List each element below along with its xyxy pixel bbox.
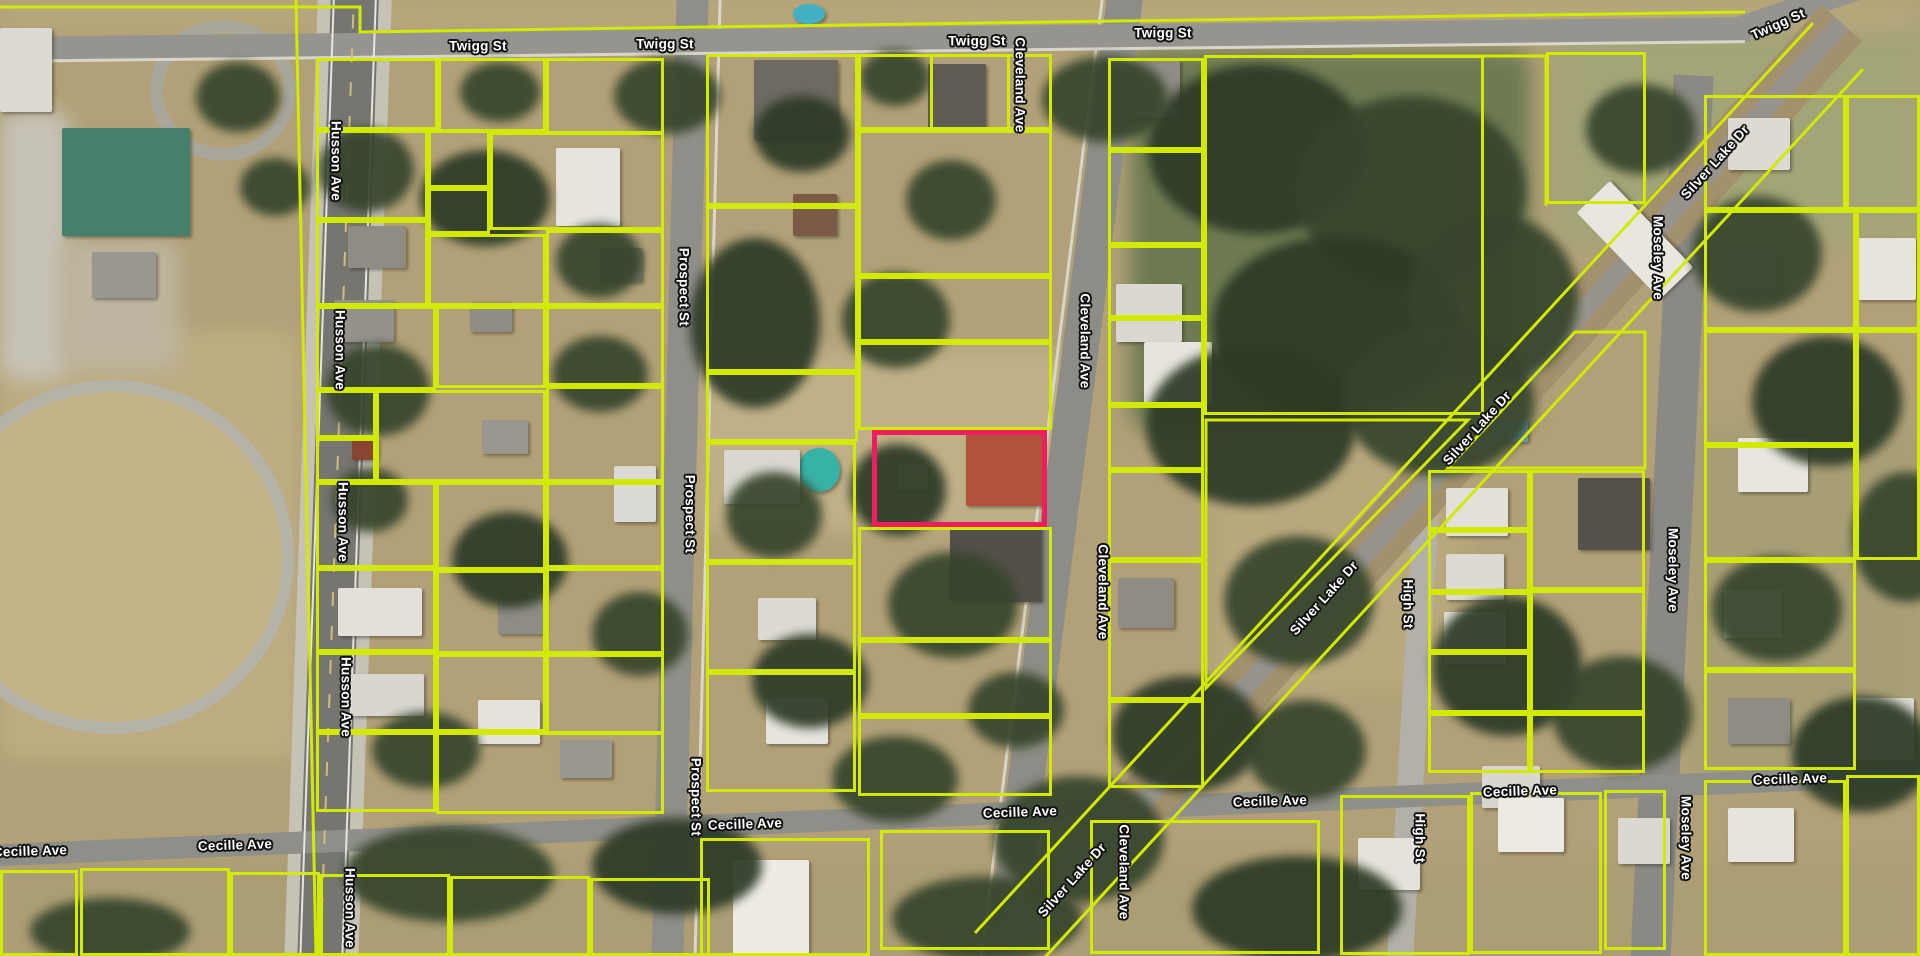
parcel-boundary[interactable] — [1704, 670, 1856, 770]
parcel-boundary[interactable] — [858, 130, 1052, 276]
parcel-boundary[interactable] — [1428, 713, 1530, 773]
parcel-boundary[interactable] — [436, 570, 546, 654]
parcel-boundary[interactable] — [436, 306, 546, 388]
street-label: Cecille Ave — [198, 836, 273, 854]
street-label: Husson Ave — [339, 657, 354, 737]
parcel-boundary[interactable] — [450, 876, 590, 956]
parcel-boundary[interactable] — [546, 654, 664, 734]
parcel-boundary[interactable] — [316, 58, 438, 130]
street-label: Cecille Ave — [0, 842, 67, 860]
parcel-boundary[interactable] — [706, 372, 858, 442]
parcel-boundary[interactable] — [1470, 792, 1602, 954]
parcel-boundary[interactable] — [230, 872, 320, 956]
street-label: Cecille Ave — [1483, 782, 1558, 800]
parcel-boundary[interactable] — [1704, 445, 1856, 560]
parcel-boundary[interactable] — [490, 132, 664, 230]
street-label: Husson Ave — [336, 482, 351, 562]
parcel-boundary[interactable] — [438, 58, 546, 132]
street-label: Moseley Ave — [1666, 528, 1681, 612]
parcel-boundary[interactable] — [1530, 713, 1645, 773]
street-label: Prospect St — [677, 248, 692, 326]
parcel-boundary[interactable] — [316, 482, 436, 568]
parcel-boundary[interactable] — [1108, 245, 1204, 318]
parcel-boundary[interactable] — [1108, 560, 1204, 700]
parcel-boundary[interactable] — [80, 868, 230, 956]
parcel-boundary[interactable] — [1530, 470, 1645, 590]
parcel-boundary[interactable] — [1604, 790, 1666, 950]
parcel-boundary[interactable] — [0, 870, 78, 956]
street-label: Cleveland Ave — [1117, 824, 1132, 919]
street-label: Husson Ave — [329, 121, 344, 201]
street-label: Husson Ave — [343, 868, 358, 948]
parcel-boundary[interactable] — [1340, 795, 1470, 955]
parcel-boundary[interactable] — [1108, 470, 1204, 560]
street-label: Cleveland Ave — [1078, 293, 1093, 388]
parcel-boundary[interactable] — [1856, 210, 1920, 330]
parcel-boundary[interactable] — [316, 220, 428, 306]
parcel-boundary[interactable] — [316, 568, 436, 652]
parcel-boundary[interactable] — [706, 54, 858, 206]
parcel-boundary[interactable] — [376, 390, 546, 482]
parcel-boundary[interactable] — [428, 188, 490, 234]
parcel-boundary[interactable] — [316, 390, 376, 438]
selected-parcel-highlight[interactable] — [872, 430, 1047, 527]
parcel-boundary[interactable] — [930, 54, 1010, 130]
street-label: High St — [1401, 579, 1416, 628]
parcel-boundary[interactable] — [858, 527, 1052, 640]
parcel-boundary[interactable] — [858, 342, 1052, 430]
parcel-boundary[interactable] — [858, 640, 1052, 716]
street-label: Cecille Ave — [983, 803, 1058, 821]
street-label: Twigg St — [948, 34, 1006, 49]
parcel-boundary[interactable] — [1856, 330, 1920, 560]
parcel-boundary[interactable] — [546, 386, 664, 482]
parcel-boundary[interactable] — [1108, 318, 1204, 405]
parcel-boundary[interactable] — [1108, 58, 1204, 150]
parcel-boundary[interactable] — [1108, 150, 1204, 245]
street-label: Twigg St — [1134, 26, 1192, 41]
street-label: Cecille Ave — [708, 815, 783, 833]
parcel-boundary[interactable] — [316, 438, 376, 482]
parcel-boundary[interactable] — [1428, 470, 1530, 530]
parcel-boundary[interactable] — [1530, 590, 1645, 713]
parcel-boundary[interactable] — [858, 276, 1052, 342]
street-label: Cecille Ave — [1753, 770, 1828, 788]
parcel-boundary[interactable] — [436, 482, 546, 570]
parcel-boundary[interactable] — [436, 654, 546, 732]
parcel-boundary[interactable] — [546, 482, 664, 568]
parcel-boundary[interactable] — [706, 442, 856, 562]
parcel-boundary[interactable] — [316, 732, 436, 812]
street-label: Cleveland Ave — [1013, 37, 1028, 132]
parcel-boundary[interactable] — [880, 830, 1050, 950]
parcel-boundary[interactable] — [546, 306, 664, 386]
parcel-boundary[interactable] — [1846, 95, 1920, 210]
parcel-boundary[interactable] — [320, 874, 450, 956]
street-label: Husson Ave — [333, 310, 348, 390]
parcel-boundary[interactable] — [706, 206, 858, 372]
parcel-boundary[interactable] — [1546, 52, 1646, 204]
street-label: Prospect St — [683, 475, 698, 553]
parcel-boundary[interactable] — [1704, 330, 1856, 445]
parcel-boundary[interactable] — [546, 58, 664, 134]
parcel-boundary[interactable] — [1428, 652, 1530, 713]
parcel-boundary[interactable] — [706, 562, 856, 672]
parcel-boundary[interactable] — [1108, 405, 1204, 470]
street-label: High St — [1413, 813, 1428, 862]
parcel-boundary[interactable] — [1204, 55, 1484, 415]
parcel-boundary[interactable] — [1428, 592, 1530, 652]
parcel-boundary[interactable] — [1846, 775, 1920, 956]
parcel-boundary[interactable] — [428, 130, 490, 188]
parcel-boundary[interactable] — [1704, 780, 1846, 956]
street-label: Moseley Ave — [1679, 796, 1694, 880]
parcel-boundary[interactable] — [436, 732, 664, 814]
street-label: Prospect St — [689, 758, 704, 836]
street-label: Cecille Ave — [1233, 792, 1308, 810]
parcel-boundary[interactable] — [1704, 560, 1856, 670]
parcel-boundary[interactable] — [590, 878, 710, 956]
parcel-boundary[interactable] — [428, 234, 546, 306]
parcel-boundary[interactable] — [546, 230, 664, 306]
street-label: Twigg St — [636, 37, 694, 52]
parcel-boundary[interactable] — [1704, 210, 1856, 330]
parcel-boundary[interactable] — [1108, 700, 1204, 788]
aerial-parcel-map[interactable]: Twigg StTwigg StTwigg StTwigg StTwigg St… — [0, 0, 1920, 956]
parcel-boundary[interactable] — [858, 716, 1052, 796]
parcel-boundary[interactable] — [706, 672, 856, 792]
street-label: Cleveland Ave — [1096, 544, 1111, 639]
parcel-boundary[interactable] — [700, 838, 870, 956]
parcel-boundary[interactable] — [1428, 530, 1530, 592]
parcel-boundary[interactable] — [546, 568, 664, 654]
street-label: Moseley Ave — [1651, 216, 1666, 300]
parcel-boundary[interactable] — [316, 652, 436, 732]
street-label: Twigg St — [449, 39, 507, 54]
